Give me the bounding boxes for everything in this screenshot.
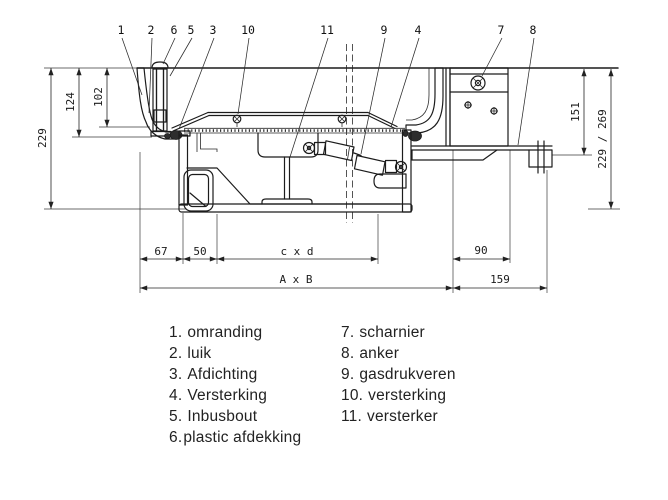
left-bracket <box>197 133 217 152</box>
legend-label: luik <box>187 345 211 362</box>
legend-right-column: 7.scharnier 8.anker 9.gasdrukveren 10.ve… <box>341 323 456 428</box>
dim-height-229-269: 229 / 269 <box>596 109 609 169</box>
callout-6: 6 <box>171 23 178 37</box>
square-tube <box>184 170 213 211</box>
legend-num: 11. <box>341 407 362 428</box>
legend-num: 1. <box>169 323 182 344</box>
legend-item-6: 6.plastic afdekking <box>169 428 301 449</box>
legend-num: 6. <box>169 428 182 449</box>
tray-screw-right <box>338 115 346 127</box>
callout-1: 1 <box>118 23 125 37</box>
bolt-assembly <box>151 62 171 136</box>
legend-item-4: 4.Versterking <box>169 386 301 407</box>
legend-item-10: 10.versterking <box>341 386 456 407</box>
dim-overall-axb: A x B <box>279 273 312 286</box>
legend-label: gasdrukveren <box>359 366 455 383</box>
callout-10: 10 <box>241 23 255 37</box>
callout-2: 2 <box>148 23 155 37</box>
frame-left-profile <box>137 68 174 139</box>
plastic-cap <box>152 62 168 68</box>
tub-left-wall <box>179 135 188 205</box>
seal-right-small <box>403 131 408 137</box>
dim-width-67: 67 <box>154 245 167 258</box>
gas-spring-lower <box>355 156 407 189</box>
dim-height-124: 124 <box>64 92 77 112</box>
seal-left-small <box>165 134 171 139</box>
i-beam <box>258 133 318 204</box>
anchor-plate <box>412 141 552 173</box>
tub-floor <box>179 204 412 212</box>
legend-num: 9. <box>341 365 354 386</box>
technical-drawing-page: 229 124 102 151 229 / 269 67 50 c x d 90… <box>0 0 668 500</box>
lid-skin <box>172 113 405 134</box>
legend-num: 8. <box>341 344 354 365</box>
dim-opening-cxd: c x d <box>280 245 313 258</box>
dim-height-102: 102 <box>92 87 105 107</box>
legend-num: 10. <box>341 386 363 407</box>
legend-item-9: 9.gasdrukveren <box>341 365 456 386</box>
callout-9: 9 <box>381 23 388 37</box>
dim-height-229: 229 <box>36 128 49 148</box>
callout-11: 11 <box>320 23 334 37</box>
legend-num: 2. <box>169 344 182 365</box>
legend-label: versterking <box>368 387 446 404</box>
legend-item-3: 3.Afdichting <box>169 365 301 386</box>
tray-screw-left <box>233 115 241 127</box>
lid-inner-skin <box>406 68 429 120</box>
legend-num: 5. <box>169 407 182 428</box>
lid-right-bend <box>406 68 443 133</box>
callout-4: 4 <box>415 23 422 37</box>
legend-label: omranding <box>187 324 262 341</box>
legend-item-7: 7.scharnier <box>341 323 456 344</box>
legend-item-5: 5.Inbusbout <box>169 407 301 428</box>
legend-label: Inbusbout <box>187 408 257 425</box>
legend-left-column: 1.omranding 2.luik 3.Afdichting 4.Verste… <box>169 323 301 448</box>
hinge-block <box>450 68 508 146</box>
dim-height-151: 151 <box>569 102 582 122</box>
legend-item-8: 8.anker <box>341 344 456 365</box>
dim-width-50: 50 <box>193 245 206 258</box>
legend-label: versterker <box>367 408 438 425</box>
legend-item-2: 2.luik <box>169 344 301 365</box>
callout-5: 5 <box>188 23 195 37</box>
callout-3: 3 <box>210 23 217 37</box>
legend-label: Afdichting <box>187 366 257 383</box>
legend-num: 7. <box>341 323 354 344</box>
tub-right-wall <box>403 130 412 212</box>
legend-label: scharnier <box>359 324 425 341</box>
legend-item-1: 1.omranding <box>169 323 301 344</box>
legend-num: 3. <box>169 365 182 386</box>
legend-item-11: 11.versterker <box>341 407 456 428</box>
legend-label: Versterking <box>187 387 267 404</box>
callout-8: 8 <box>530 23 537 37</box>
dim-width-90: 90 <box>474 244 487 257</box>
legend-label: plastic afdekking <box>183 429 301 446</box>
legend-num: 4. <box>169 386 182 407</box>
callout-7: 7 <box>498 23 505 37</box>
legend-label: anker <box>359 345 399 362</box>
dim-width-159: 159 <box>490 273 510 286</box>
section-geometry <box>137 62 618 212</box>
centerline <box>347 44 353 223</box>
section-drawing: 229 124 102 151 229 / 269 67 50 c x d 90… <box>0 0 668 500</box>
